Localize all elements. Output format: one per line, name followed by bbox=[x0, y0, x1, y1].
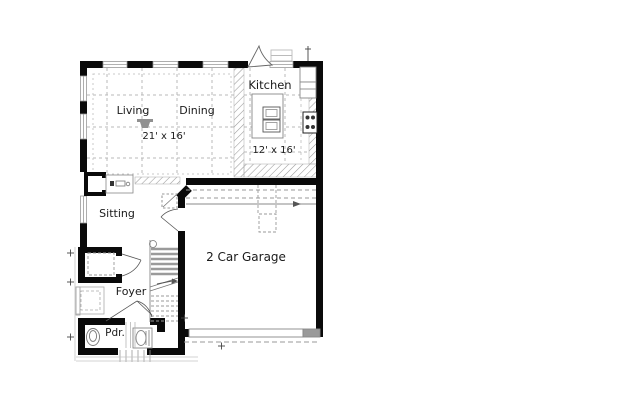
fireplace-icon bbox=[84, 172, 133, 196]
room-label-living: Living bbox=[104, 104, 162, 117]
exterior-door-icon bbox=[248, 46, 272, 67]
garage-door bbox=[184, 329, 320, 342]
room-label-garage: 2 Car Garage bbox=[185, 250, 307, 264]
range-icon bbox=[303, 112, 317, 133]
dimension-great-room: 21' x 16' bbox=[132, 131, 196, 142]
room-label-kitchen: Kitchen bbox=[239, 78, 301, 92]
stoop-steps bbox=[271, 50, 292, 61]
newel-post-icon bbox=[150, 241, 157, 248]
closet-door-swing bbox=[122, 254, 141, 276]
garage-overhead-lines bbox=[186, 185, 316, 232]
tv-niche-icon bbox=[137, 119, 153, 128]
refrigerator-cabinet-icon bbox=[300, 67, 316, 98]
garage-entry-door-swing bbox=[161, 209, 178, 231]
dimension-kitchen: 12' x 16' bbox=[243, 145, 305, 156]
kitchen-island bbox=[252, 94, 283, 138]
attic-access-icon bbox=[162, 194, 177, 208]
room-label-foyer: Foyer bbox=[101, 285, 161, 298]
survey-marker-top bbox=[305, 46, 311, 61]
room-label-powder: Pdr. bbox=[95, 327, 135, 339]
closet-shelf bbox=[88, 253, 114, 275]
room-label-sitting: Sitting bbox=[86, 207, 148, 220]
pedestal-sink-icon bbox=[133, 328, 152, 348]
room-label-dining: Dining bbox=[168, 104, 226, 117]
floor-plan-canvas: Living Dining Kitchen Sitting 2 Car Gara… bbox=[0, 0, 620, 415]
entry-steps bbox=[120, 350, 150, 362]
staircase bbox=[150, 240, 179, 322]
